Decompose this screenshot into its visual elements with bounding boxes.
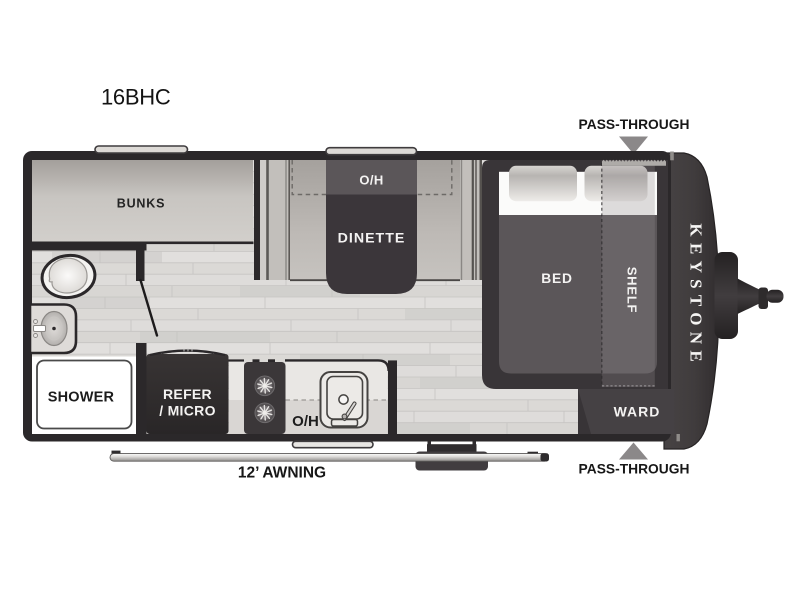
svg-text:O/H: O/H xyxy=(359,173,383,188)
svg-text:DINETTE: DINETTE xyxy=(338,231,406,247)
svg-text:12’ AWNING: 12’ AWNING xyxy=(238,465,326,482)
svg-text:BED: BED xyxy=(541,271,573,286)
svg-text:WARD: WARD xyxy=(614,404,661,420)
svg-text:BUNKS: BUNKS xyxy=(117,197,165,211)
svg-text:KEYSTONE: KEYSTONE xyxy=(687,223,706,368)
svg-text:SHOWER: SHOWER xyxy=(48,390,115,406)
svg-text:PASS-THROUGH: PASS-THROUGH xyxy=(579,117,690,132)
svg-text:PASS-THROUGH: PASS-THROUGH xyxy=(579,462,690,477)
svg-text:REFER: REFER xyxy=(163,386,212,402)
svg-text:O/H: O/H xyxy=(292,413,319,430)
svg-text:16BHC: 16BHC xyxy=(101,85,171,110)
svg-text:SHELF: SHELF xyxy=(625,267,640,314)
svg-text:/ MICRO: / MICRO xyxy=(159,403,216,419)
